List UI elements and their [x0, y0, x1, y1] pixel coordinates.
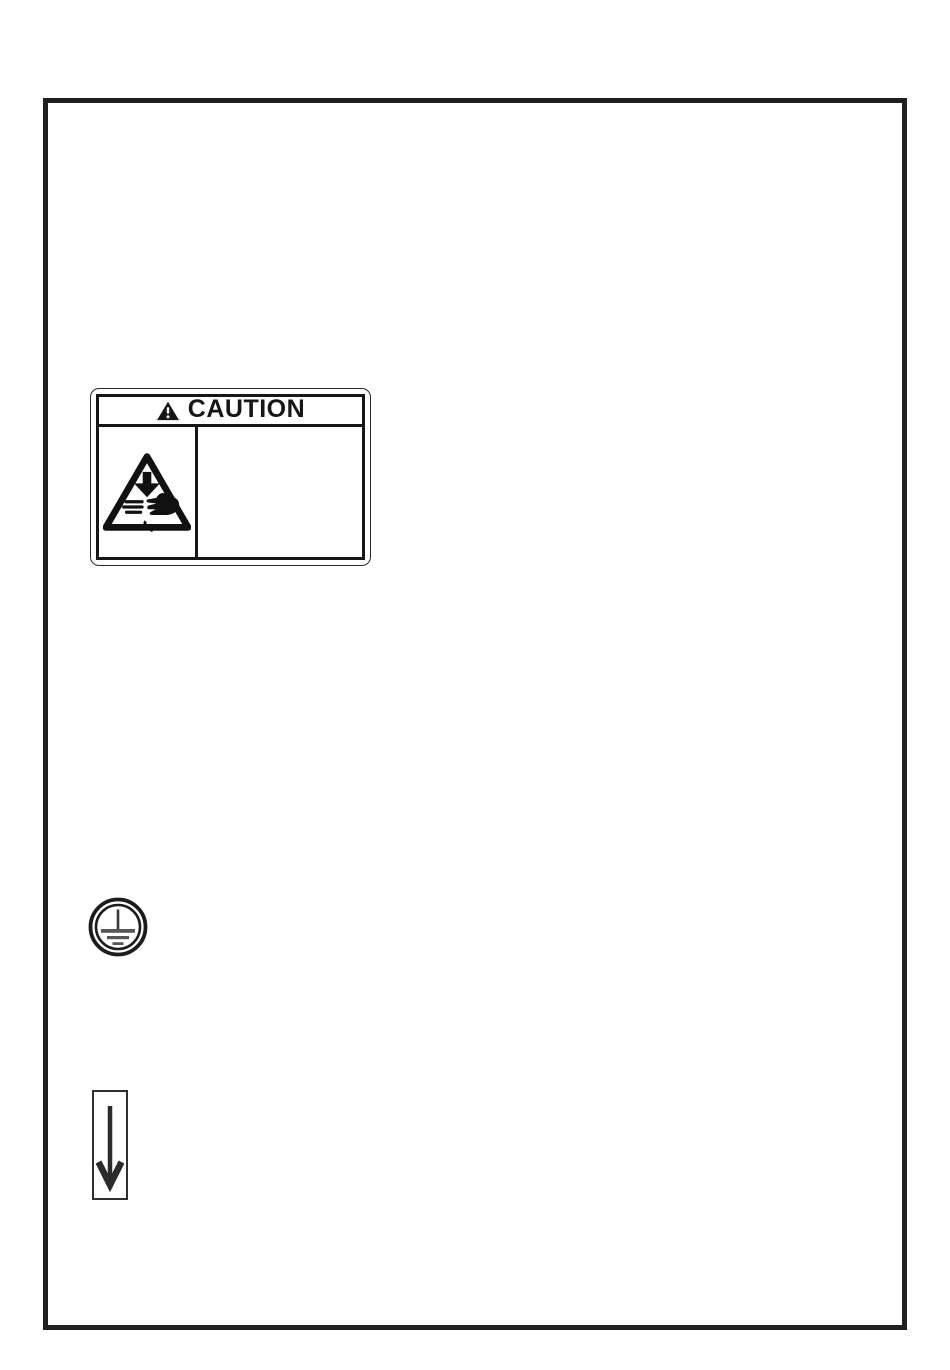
down-arrow-box: [92, 1090, 128, 1200]
caution-label-inner: CAUTION: [96, 394, 365, 560]
caution-title: CAUTION: [188, 397, 305, 422]
page-border-frame: [43, 98, 907, 1330]
caution-header: CAUTION: [99, 397, 362, 427]
warning-triangle-icon: [156, 400, 180, 422]
manual-page: CAUTION: [0, 0, 950, 1370]
caution-text-area: [198, 427, 362, 557]
hand-injury-hazard-icon: [103, 450, 191, 534]
down-arrow-icon: [94, 1094, 126, 1196]
protective-earth-icon: [87, 896, 149, 958]
caution-label: CAUTION: [90, 388, 371, 566]
caution-body: [99, 427, 362, 557]
hand-hazard-cell: [99, 427, 198, 557]
